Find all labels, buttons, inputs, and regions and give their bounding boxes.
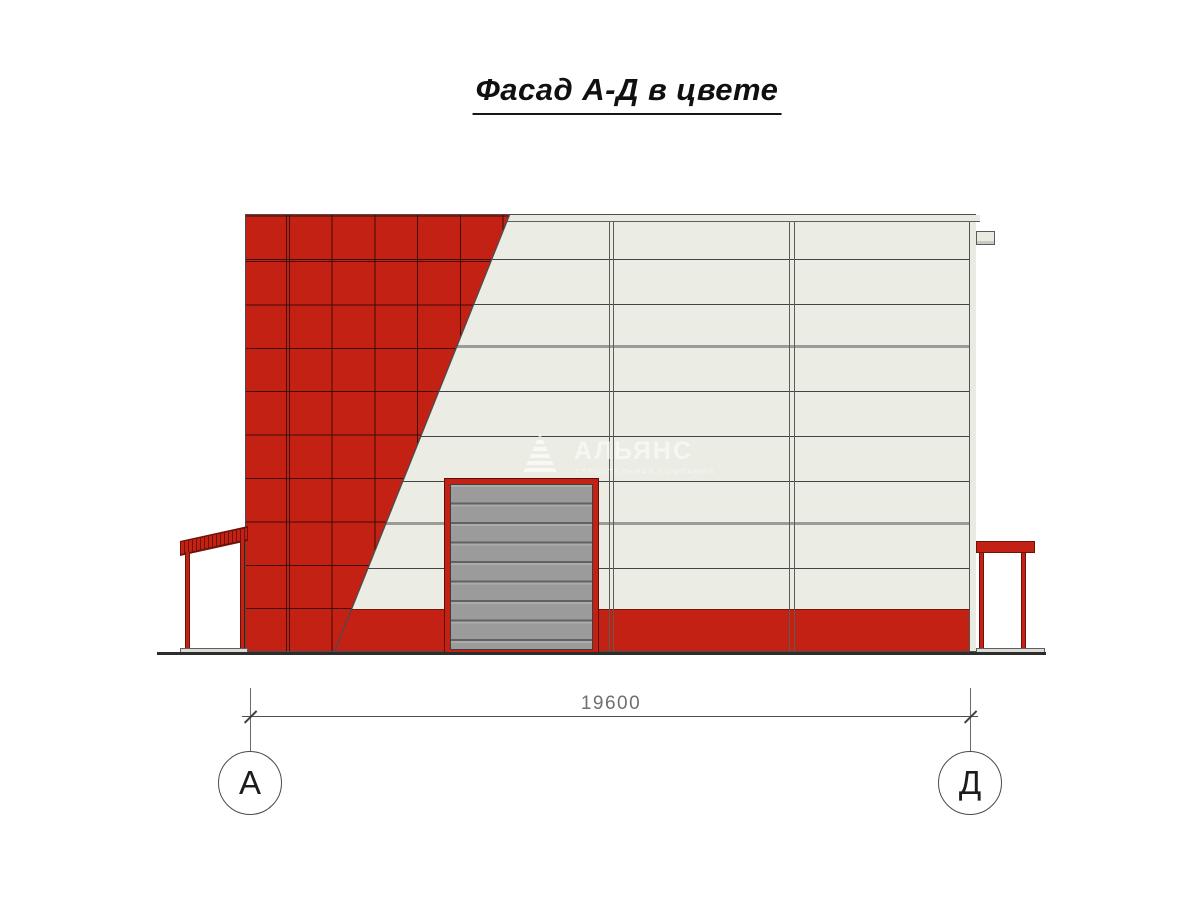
wall-mullion — [609, 222, 615, 651]
dimension-label: 19600 — [581, 693, 641, 715]
canopy-column — [240, 539, 245, 652]
right-canopy — [975, 541, 1047, 652]
axis-label-d: Д — [959, 764, 981, 802]
facade-drawing-sheet: Фасад А-Д в цвете АЛЬЯНС СТРОИТЕЛЬНАЯ КО… — [0, 0, 1200, 900]
right-canopy-roof — [976, 541, 1035, 553]
drain-scupper — [976, 231, 995, 245]
axis-bubble-d: Д — [938, 751, 1002, 815]
watermark-tagline: СТРОИТЕЛЬНАЯ КОМПАНИЯ — [575, 467, 715, 476]
garage-door-frame — [444, 478, 599, 653]
canopy-column — [1021, 553, 1026, 648]
dimension-extension-line-a — [250, 688, 251, 751]
dimension-extension-line-d — [970, 688, 971, 751]
canopy-column — [979, 553, 984, 648]
axis-bubble-a: А — [218, 751, 282, 815]
wall-mullion — [789, 222, 795, 651]
drawing-title: Фасад А-Д в цвете — [473, 72, 782, 115]
building-facade: АЛЬЯНС СТРОИТЕЛЬНАЯ КОМПАНИЯ — [245, 214, 976, 652]
watermark-brand: АЛЬЯНС — [574, 437, 693, 466]
dimension-line — [242, 716, 978, 717]
watermark: АЛЬЯНС СТРОИТЕЛЬНАЯ КОМПАНИЯ — [522, 431, 752, 481]
garage-door — [450, 484, 593, 650]
pyramid-logo-icon — [522, 433, 558, 475]
canopy-column — [185, 552, 190, 652]
left-canopy — [180, 526, 250, 652]
ground-line — [157, 652, 1046, 655]
axis-label-a: А — [239, 764, 261, 802]
